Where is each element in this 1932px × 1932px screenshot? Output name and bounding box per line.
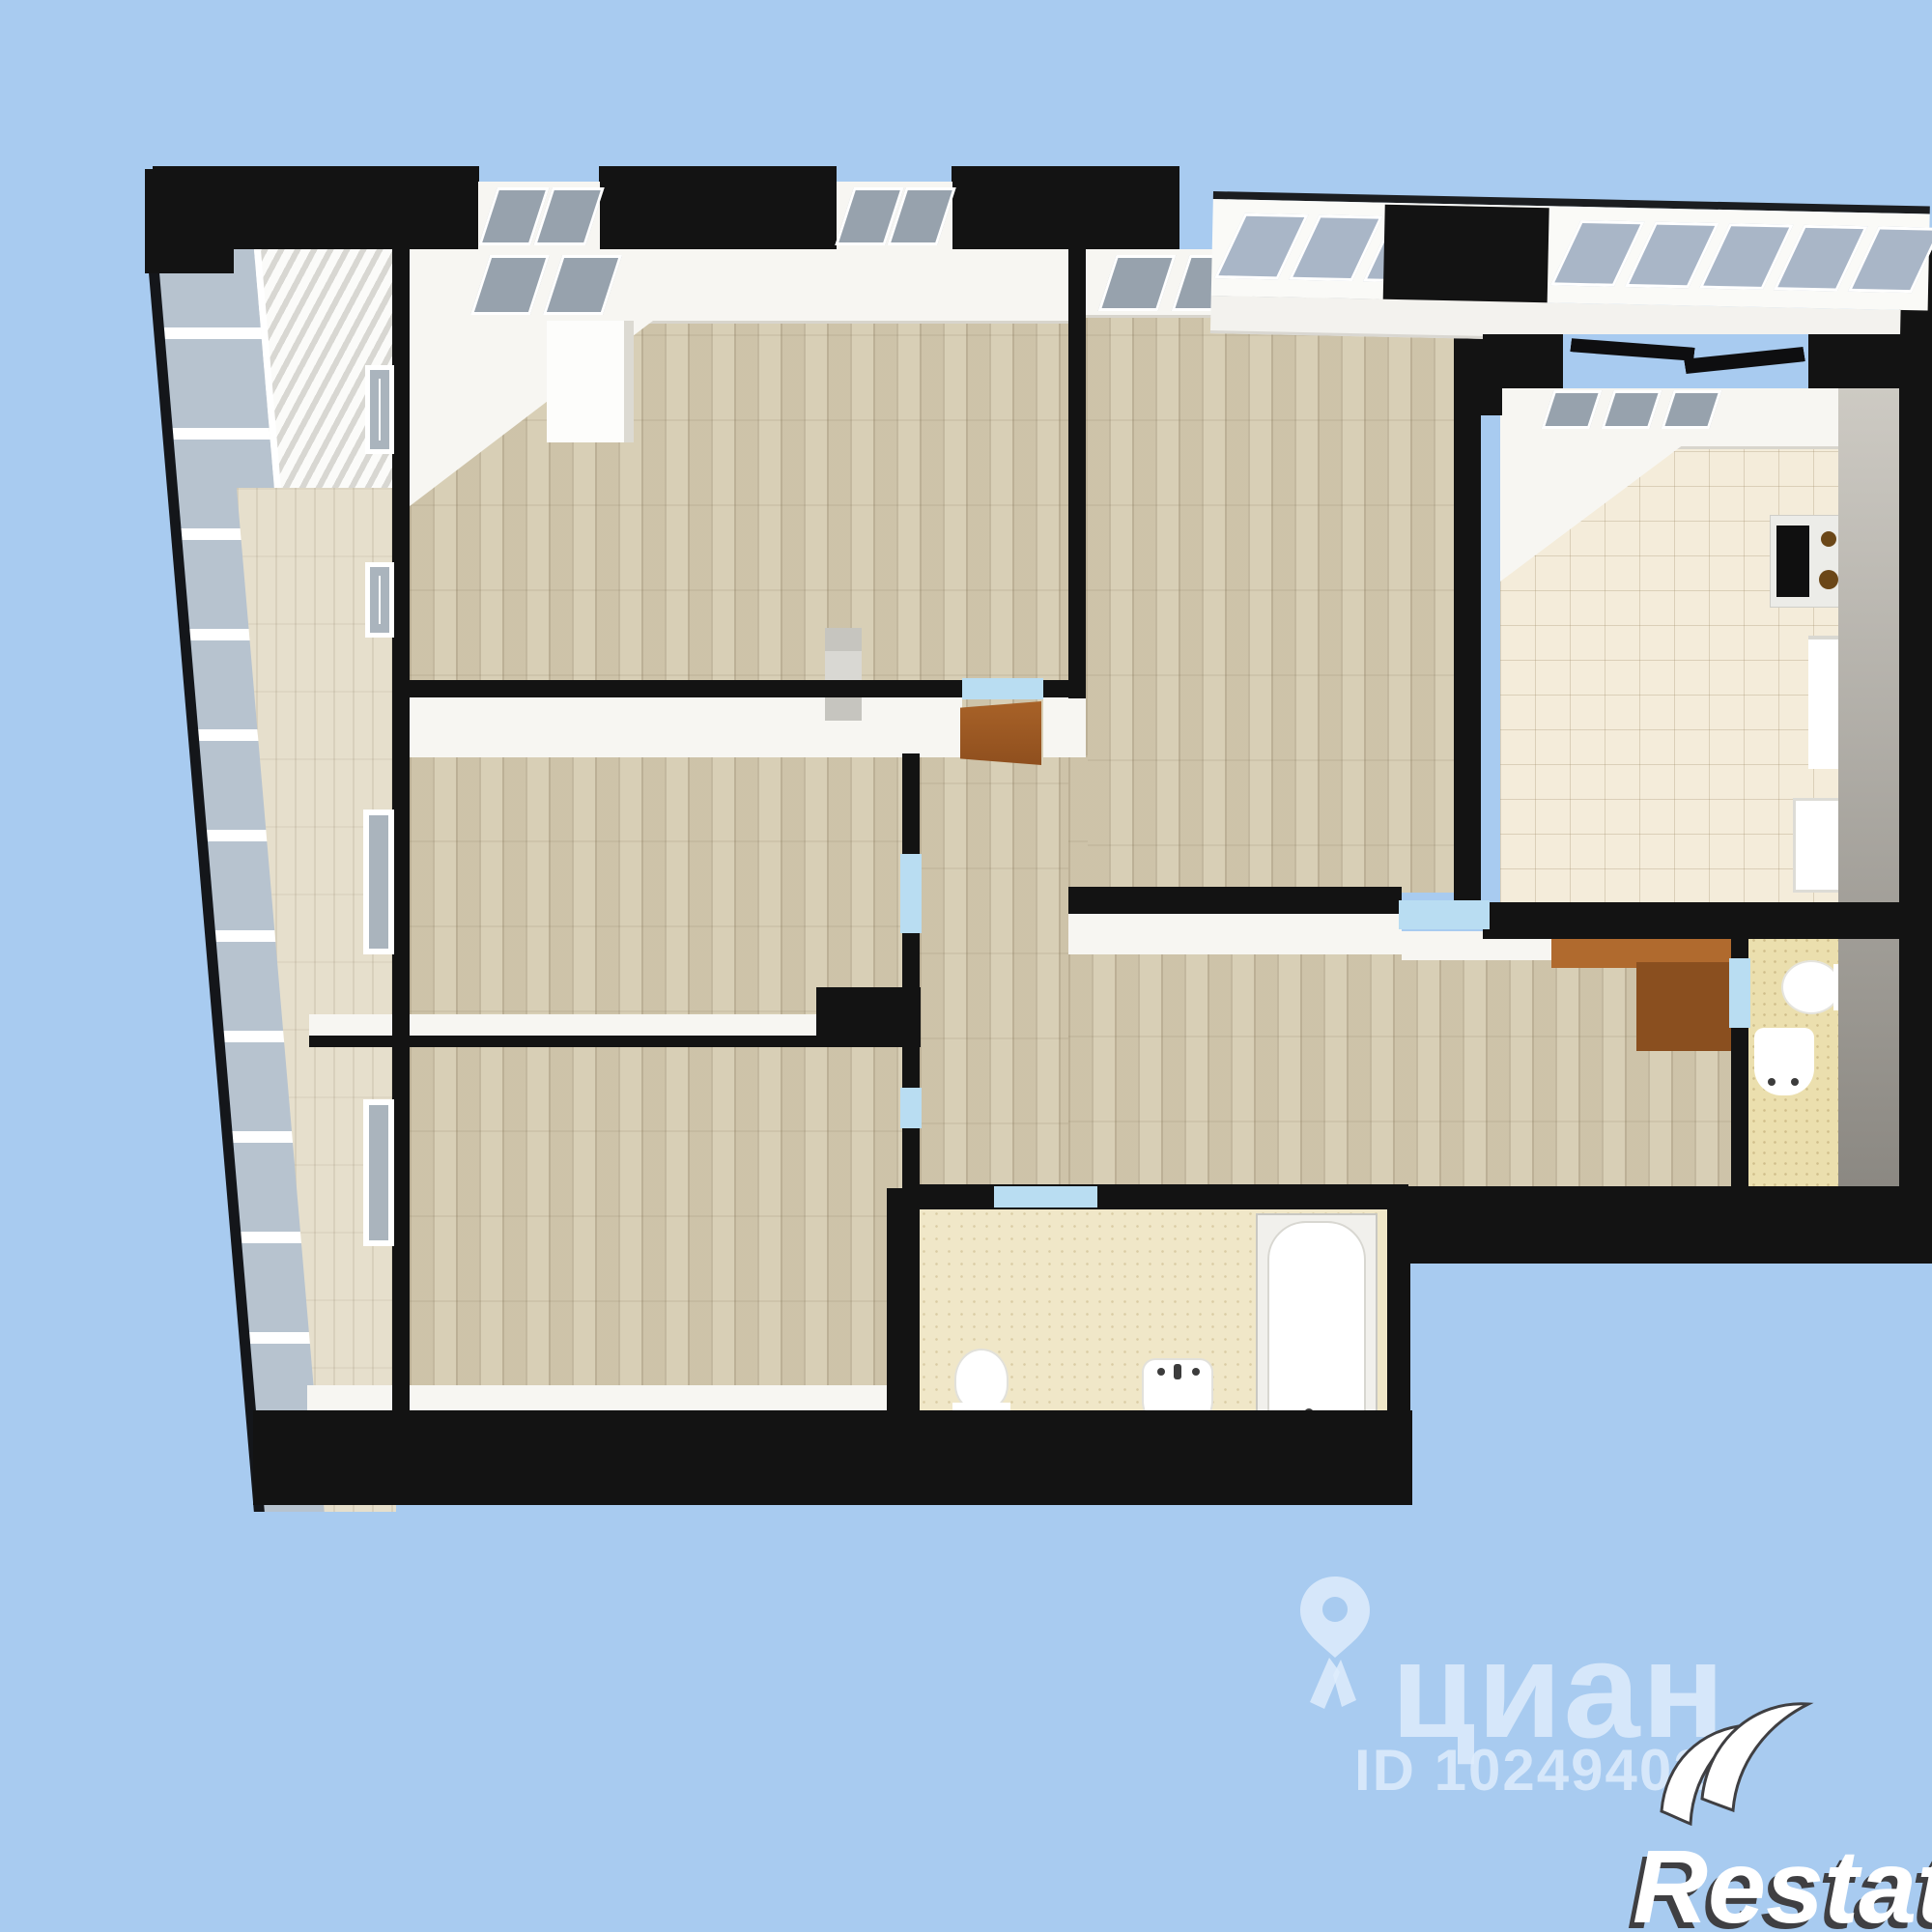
door-threshold-wc (1729, 958, 1750, 1028)
west-rooms-wall (392, 246, 410, 1413)
wc-toilet-bowl (1783, 962, 1839, 1012)
double-crescent-icon (1662, 1704, 1808, 1824)
room-middle-left-floor (410, 755, 902, 1014)
bathroom-toilet-bowl (956, 1350, 1007, 1408)
cian-pin-icon (1294, 1573, 1376, 1719)
wardrobe-white (547, 321, 634, 442)
bathtub (1256, 1213, 1378, 1439)
corridor-north-wall-face-1 (1068, 914, 1402, 954)
sink-faucet (1174, 1364, 1181, 1379)
floor-plan-screenshot: циан ID 10249402 Restate Restate (0, 0, 1932, 1932)
sink-handle-2 (1192, 1368, 1200, 1376)
north-wall-segment-3 (952, 166, 1179, 249)
west-balcony-door-2 (363, 1099, 394, 1246)
oven-door (1776, 526, 1809, 597)
wc-sink (1754, 1028, 1814, 1095)
door-threshold-room-bottom-left (900, 1088, 922, 1128)
south-outer-wall (253, 1410, 1412, 1505)
balcony-top-right (1210, 191, 1930, 354)
door-threshold-bathroom (994, 1186, 1097, 1207)
room-top-right-south-wall (1068, 887, 1402, 914)
restate-text: Restate (1633, 1828, 1932, 1932)
burner-small-2 (1819, 570, 1838, 589)
sink-handle-1 (1157, 1368, 1165, 1376)
wall-junction-block (816, 987, 921, 1047)
radiator (825, 628, 862, 721)
room-top-left-south-wall-face (394, 697, 962, 757)
open-door-leaf (960, 701, 1041, 765)
bathtub-basin (1267, 1221, 1366, 1424)
room-bottom-left-floor (410, 1045, 902, 1410)
east-wall-inner-face (1838, 365, 1899, 1188)
kitchen-south-wall (1483, 902, 1901, 939)
room-top-left-south-wall-b (1043, 680, 1086, 697)
south-east-outer-wall (1399, 1186, 1932, 1264)
bathroom-north-wall (914, 1184, 1408, 1209)
room-top-right-floor (1086, 249, 1454, 893)
wall-room-kitchen (1454, 246, 1481, 909)
door-threshold-room-middle-left (900, 854, 922, 933)
east-outer-wall (1899, 230, 1932, 1262)
wc-sink-handle-1 (1768, 1078, 1776, 1086)
north-wall-segment-1 (153, 166, 479, 249)
wall-between-top-rooms (1068, 246, 1086, 698)
restate-logo: Restate Restate (1594, 1681, 1932, 1932)
room-divider-wall (309, 1036, 904, 1047)
west-window-insert-1 (365, 365, 394, 454)
burner-small-1 (1821, 531, 1836, 547)
door-threshold-kitchen (1399, 900, 1490, 929)
door-threshold-room-top-left (962, 678, 1043, 699)
wc-sink-handle-2 (1791, 1078, 1799, 1086)
balcony-wall-block (1383, 205, 1549, 305)
corridor-wardrobe-front (1636, 962, 1737, 1051)
room-top-left-south-wall-a (394, 680, 962, 697)
north-wall-segment-2 (599, 166, 837, 249)
west-window-insert-2 (365, 562, 394, 638)
bathroom-west-wall (887, 1188, 920, 1441)
west-balcony-door-1 (363, 810, 394, 954)
corridor-floor-vertical (920, 697, 1068, 1186)
wall-face-stub (1043, 697, 1086, 757)
